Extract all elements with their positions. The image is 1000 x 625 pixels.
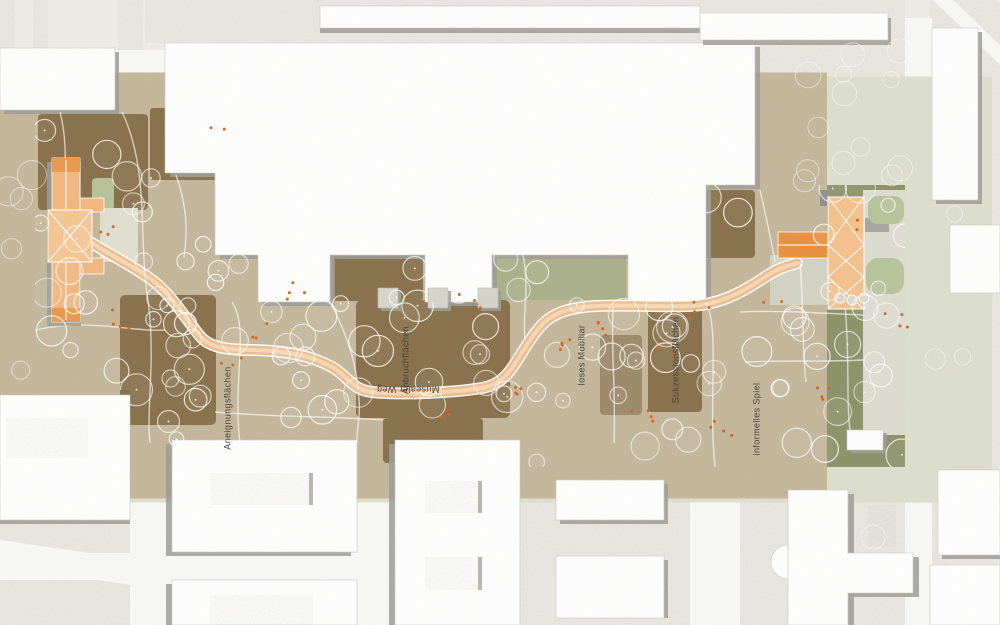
site-plan: Aneignungsflächen Abbruchflächen Museale… — [0, 0, 1000, 625]
label-abbruchflaechen: Abbruchflächen — [400, 326, 410, 394]
label-informelles-spiel: informelles Spiel — [751, 383, 761, 456]
label-aneignungsflaechen: Aneignungsflächen — [222, 366, 232, 449]
site-plan-map: Aneignungsflächen Abbruchflächen Museale… — [0, 0, 1000, 625]
label-loses-mobiliar: loses Mobiliar — [576, 325, 586, 386]
label-sukzessionsflaechen: Sukzessionsflächen — [670, 317, 680, 404]
label-musealer-weg: Musealer Weg — [377, 385, 440, 395]
texture-overlay — [0, 0, 1000, 625]
